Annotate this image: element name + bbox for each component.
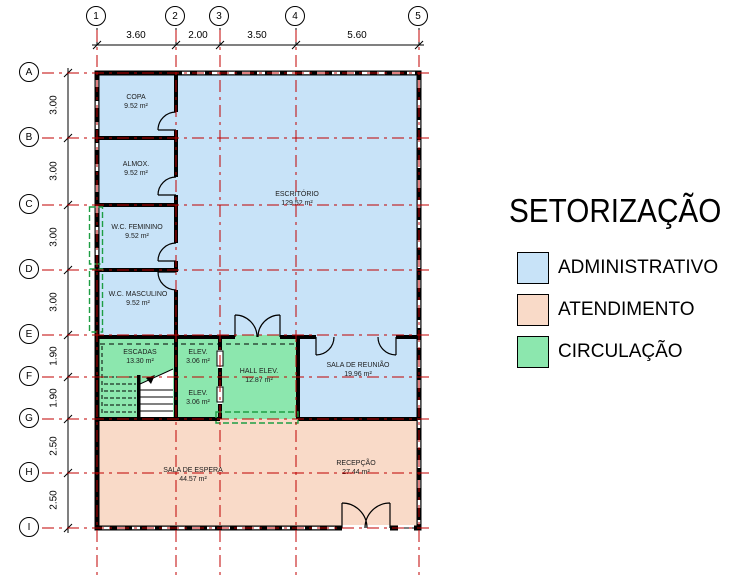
- legend-label-circulacao: CIRCULAÇÃO: [558, 341, 683, 363]
- dim-row-e-f: 1.90: [49, 346, 60, 365]
- room-label-elev-1: ELEV.3.06 m²: [186, 349, 210, 366]
- room-label-wc-masculino: W.C. MASCULINO9.52 m²: [109, 291, 168, 308]
- grid-bubble-row-g: G: [19, 408, 39, 428]
- dim-row-f-g: 1.90: [49, 388, 60, 407]
- dim-row-b-c: 3.00: [49, 161, 60, 180]
- elevator-door-1: [217, 351, 223, 366]
- room-label-sala-espera: SALA DE ESPERA44.57 m²: [163, 467, 223, 484]
- grid-bubble-row-e: E: [19, 324, 39, 344]
- room-label-wc-feminino: W.C. FEMININO9.52 m²: [111, 224, 162, 241]
- grid-bubble-row-a: A: [19, 62, 39, 82]
- grid-bubble-row-d: D: [19, 259, 39, 279]
- legend-swatch-circulacao: [517, 336, 549, 368]
- grid-bubble-col-5: 5: [408, 6, 428, 26]
- grid-bubble-row-i: I: [19, 517, 39, 537]
- elevator-door-2: [217, 387, 223, 402]
- grid-bubble-row-b: B: [19, 127, 39, 147]
- dim-col-3-4: 3.50: [247, 30, 266, 41]
- stairs-divider-wall: [137, 375, 141, 417]
- grid-bubble-row-c: C: [19, 194, 39, 214]
- room-label-escadas: ESCADAS13.30 m²: [123, 349, 156, 366]
- grid-bubble-col-1: 1: [86, 6, 106, 26]
- floor-plan-drawing: [0, 0, 756, 577]
- dim-row-d-e: 3.00: [49, 292, 60, 311]
- dim-col-1-2: 3.60: [126, 30, 145, 41]
- grid-bubble-row-f: F: [19, 366, 39, 386]
- room-label-hall-elev: HALL ELEV.12.87 m²: [240, 368, 278, 385]
- legend-swatch-administrativo: [517, 252, 549, 284]
- legend-title: SETORIZAÇÃO: [509, 192, 721, 230]
- legend-item-circulacao: CIRCULAÇÃO: [517, 336, 683, 368]
- legend-label-administrativo: ADMINISTRATIVO: [558, 257, 718, 279]
- legend-item-atendimento: ATENDIMENTO: [517, 294, 695, 326]
- dim-row-c-d: 3.00: [49, 227, 60, 246]
- room-label-escritorio: ESCRITÓRIO129.52 m²: [275, 191, 319, 208]
- room-label-almox: ALMOX.9.52 m²: [123, 161, 149, 178]
- dim-row-g-h: 2.50: [49, 436, 60, 455]
- legend-label-atendimento: ATENDIMENTO: [558, 299, 695, 321]
- grid-bubble-col-3: 3: [209, 6, 229, 26]
- legend-item-administrativo: ADMINISTRATIVO: [517, 252, 718, 284]
- grid-bubble-col-4: 4: [285, 6, 305, 26]
- room-label-copa: COPA9.52 m²: [124, 94, 148, 111]
- dim-col-4-5: 5.60: [347, 30, 366, 41]
- dim-row-h-i: 2.50: [49, 490, 60, 509]
- floor-plan-page: { "legend": { "title": "SETORIZAÇÃO", "i…: [0, 0, 756, 577]
- dim-row-a-b: 3.00: [49, 95, 60, 114]
- dim-col-2-3: 2.00: [188, 30, 207, 41]
- grid-bubble-row-h: H: [19, 462, 39, 482]
- room-label-sala-reuniao: SALA DE REUNIÃO19.96 m²: [326, 362, 389, 379]
- grid-bubble-col-2: 2: [165, 6, 185, 26]
- legend-swatch-atendimento: [517, 294, 549, 326]
- room-label-recepcao: RECEPÇÃO27.44 m²: [336, 460, 375, 477]
- room-label-elev-2: ELEV.3.06 m²: [186, 390, 210, 407]
